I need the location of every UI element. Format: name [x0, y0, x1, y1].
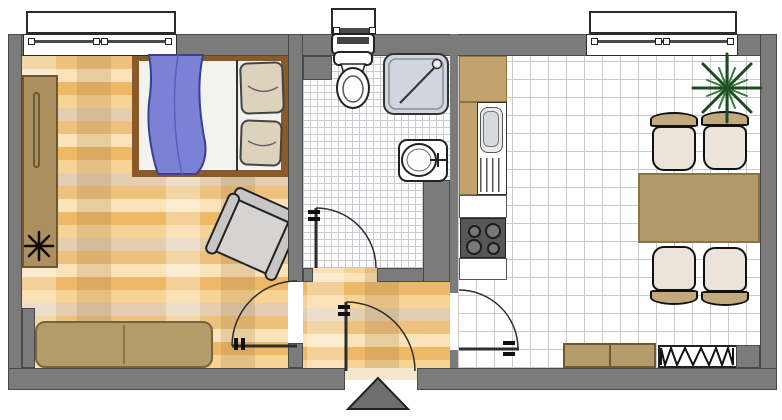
kitchen-window	[589, 11, 737, 34]
wall-living-hall-stub	[288, 343, 303, 368]
chair-2-seat	[703, 125, 747, 170]
window-handle	[369, 27, 376, 34]
chair-1-back	[650, 112, 698, 127]
sofa	[35, 321, 213, 368]
window-handle	[93, 38, 100, 45]
kitchen-worktop-1	[459, 195, 507, 218]
chair-1-seat	[652, 126, 696, 171]
sofa-seat-divider	[123, 325, 125, 364]
sink-basin-inner	[483, 111, 499, 147]
bathroom-window-bar	[336, 28, 372, 33]
wall-bath-kitchen-upper	[450, 34, 458, 293]
kitchen-sideboard	[563, 343, 656, 368]
window-handle	[28, 38, 35, 45]
bed-pillow-1	[239, 61, 285, 115]
living-room-window-sill	[23, 34, 177, 56]
living-room-window-bar	[30, 40, 170, 43]
wall-living-bath	[288, 34, 303, 282]
wall-bottom-right-part	[417, 368, 777, 390]
chair-4-seat	[703, 247, 747, 292]
kitchen-window-sill	[586, 34, 738, 56]
sink-drainer	[480, 158, 504, 192]
entrance-threshold	[345, 368, 417, 390]
hallway-floor	[303, 268, 450, 368]
window-handle	[591, 38, 598, 45]
kitchen-upper-cabinet	[459, 56, 507, 102]
bath-shaft-block	[423, 180, 450, 282]
kitchen-counter-strip	[459, 102, 478, 195]
window-handle	[165, 38, 172, 45]
kitchen-sideboard-divider	[609, 345, 611, 366]
wall-left	[8, 34, 22, 390]
window-handle	[655, 38, 662, 45]
wall-step-bottom-left	[22, 308, 35, 368]
sink-basin	[480, 107, 503, 153]
chair-4-back	[701, 291, 749, 306]
burner-large-2	[466, 239, 482, 255]
living-room-window	[26, 11, 176, 34]
bath-bottom-wall-left	[303, 268, 313, 282]
kitchen-window-bar	[593, 40, 731, 43]
kitchen-worktop-2	[459, 258, 507, 280]
burner-small-2	[487, 242, 500, 255]
floor-plan	[0, 0, 782, 420]
bath-duct-block	[303, 56, 332, 80]
burner-small-1	[468, 225, 481, 238]
window-handle	[101, 38, 108, 45]
window-handle	[663, 38, 670, 45]
wardrobe-handle	[33, 92, 40, 168]
chair-3-seat	[652, 246, 696, 291]
bed-pillow-2	[239, 119, 283, 166]
kitchen-sink-unit	[477, 102, 507, 195]
window-handle	[727, 38, 734, 45]
stove	[460, 218, 506, 258]
wall-bottom-left-part	[8, 368, 345, 390]
radiator	[658, 345, 738, 368]
wall-right	[760, 34, 777, 390]
wall-bath-kitchen-lower	[450, 350, 458, 368]
window-handle	[333, 27, 340, 34]
chair-3-back	[650, 290, 698, 305]
wall-step-bottom-right	[736, 345, 760, 368]
wardrobe-sideboard	[22, 75, 58, 268]
dining-table	[638, 173, 760, 243]
chair-2-back	[701, 111, 749, 126]
burner-large-1	[485, 223, 501, 239]
